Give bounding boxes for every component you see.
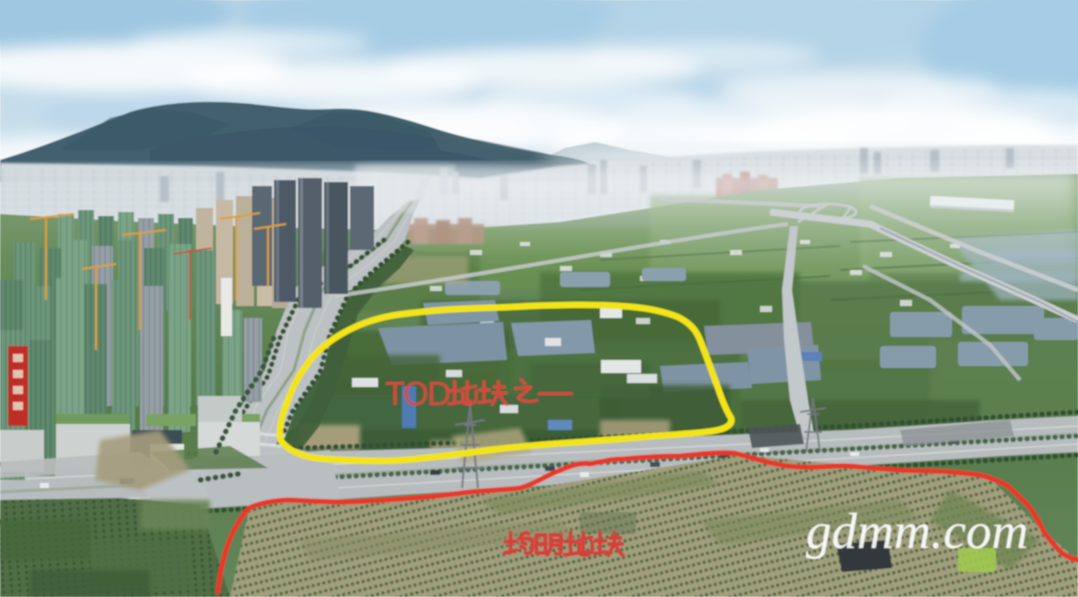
svg-text:gdmm.com: gdmm.com xyxy=(806,504,1028,560)
svg-text:TOD: TOD xyxy=(385,375,450,412)
